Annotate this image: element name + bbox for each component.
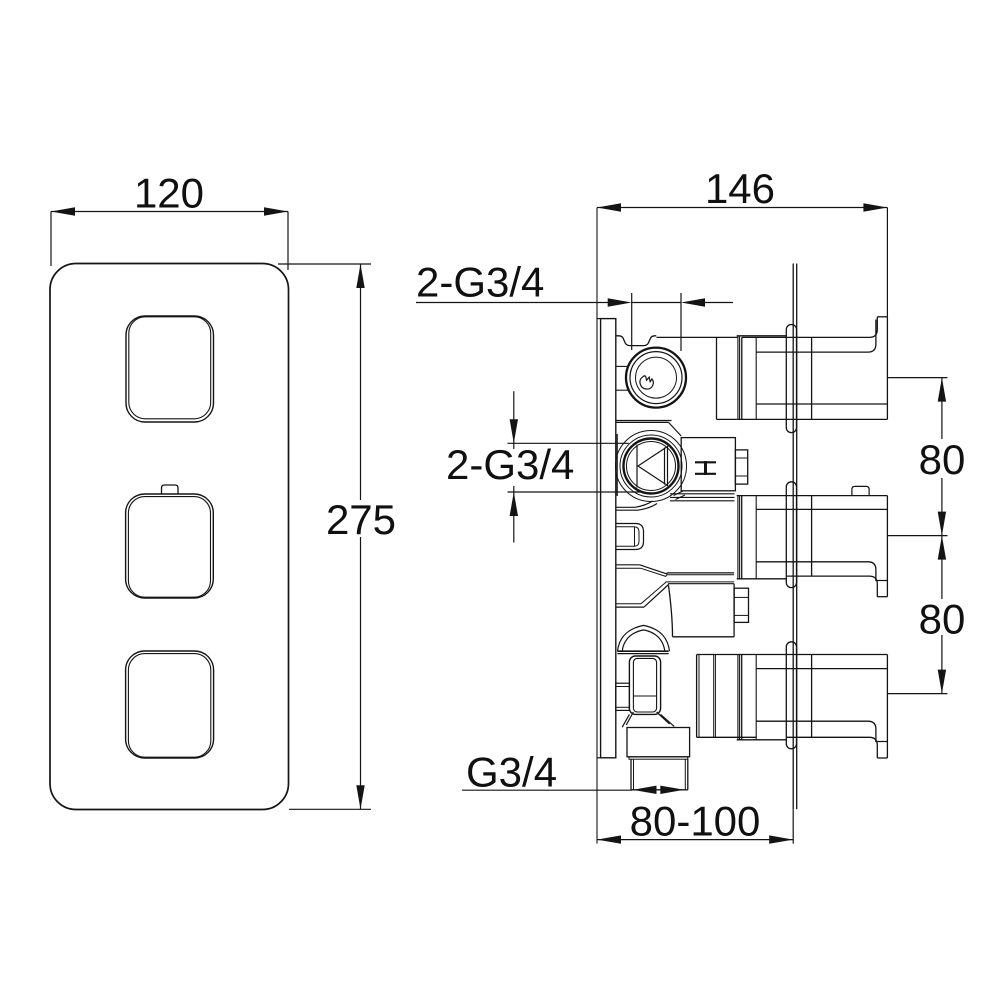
svg-text:2-G3/4: 2-G3/4 [416, 259, 544, 306]
svg-text:275: 275 [326, 496, 396, 543]
svg-text:80-100: 80-100 [630, 798, 761, 845]
svg-text:80: 80 [919, 596, 966, 643]
svg-text:146: 146 [705, 165, 775, 212]
svg-text:120: 120 [134, 170, 204, 217]
svg-text:80: 80 [919, 436, 966, 483]
svg-text:G3/4: G3/4 [466, 749, 557, 796]
svg-text:2-G3/4: 2-G3/4 [446, 441, 574, 488]
